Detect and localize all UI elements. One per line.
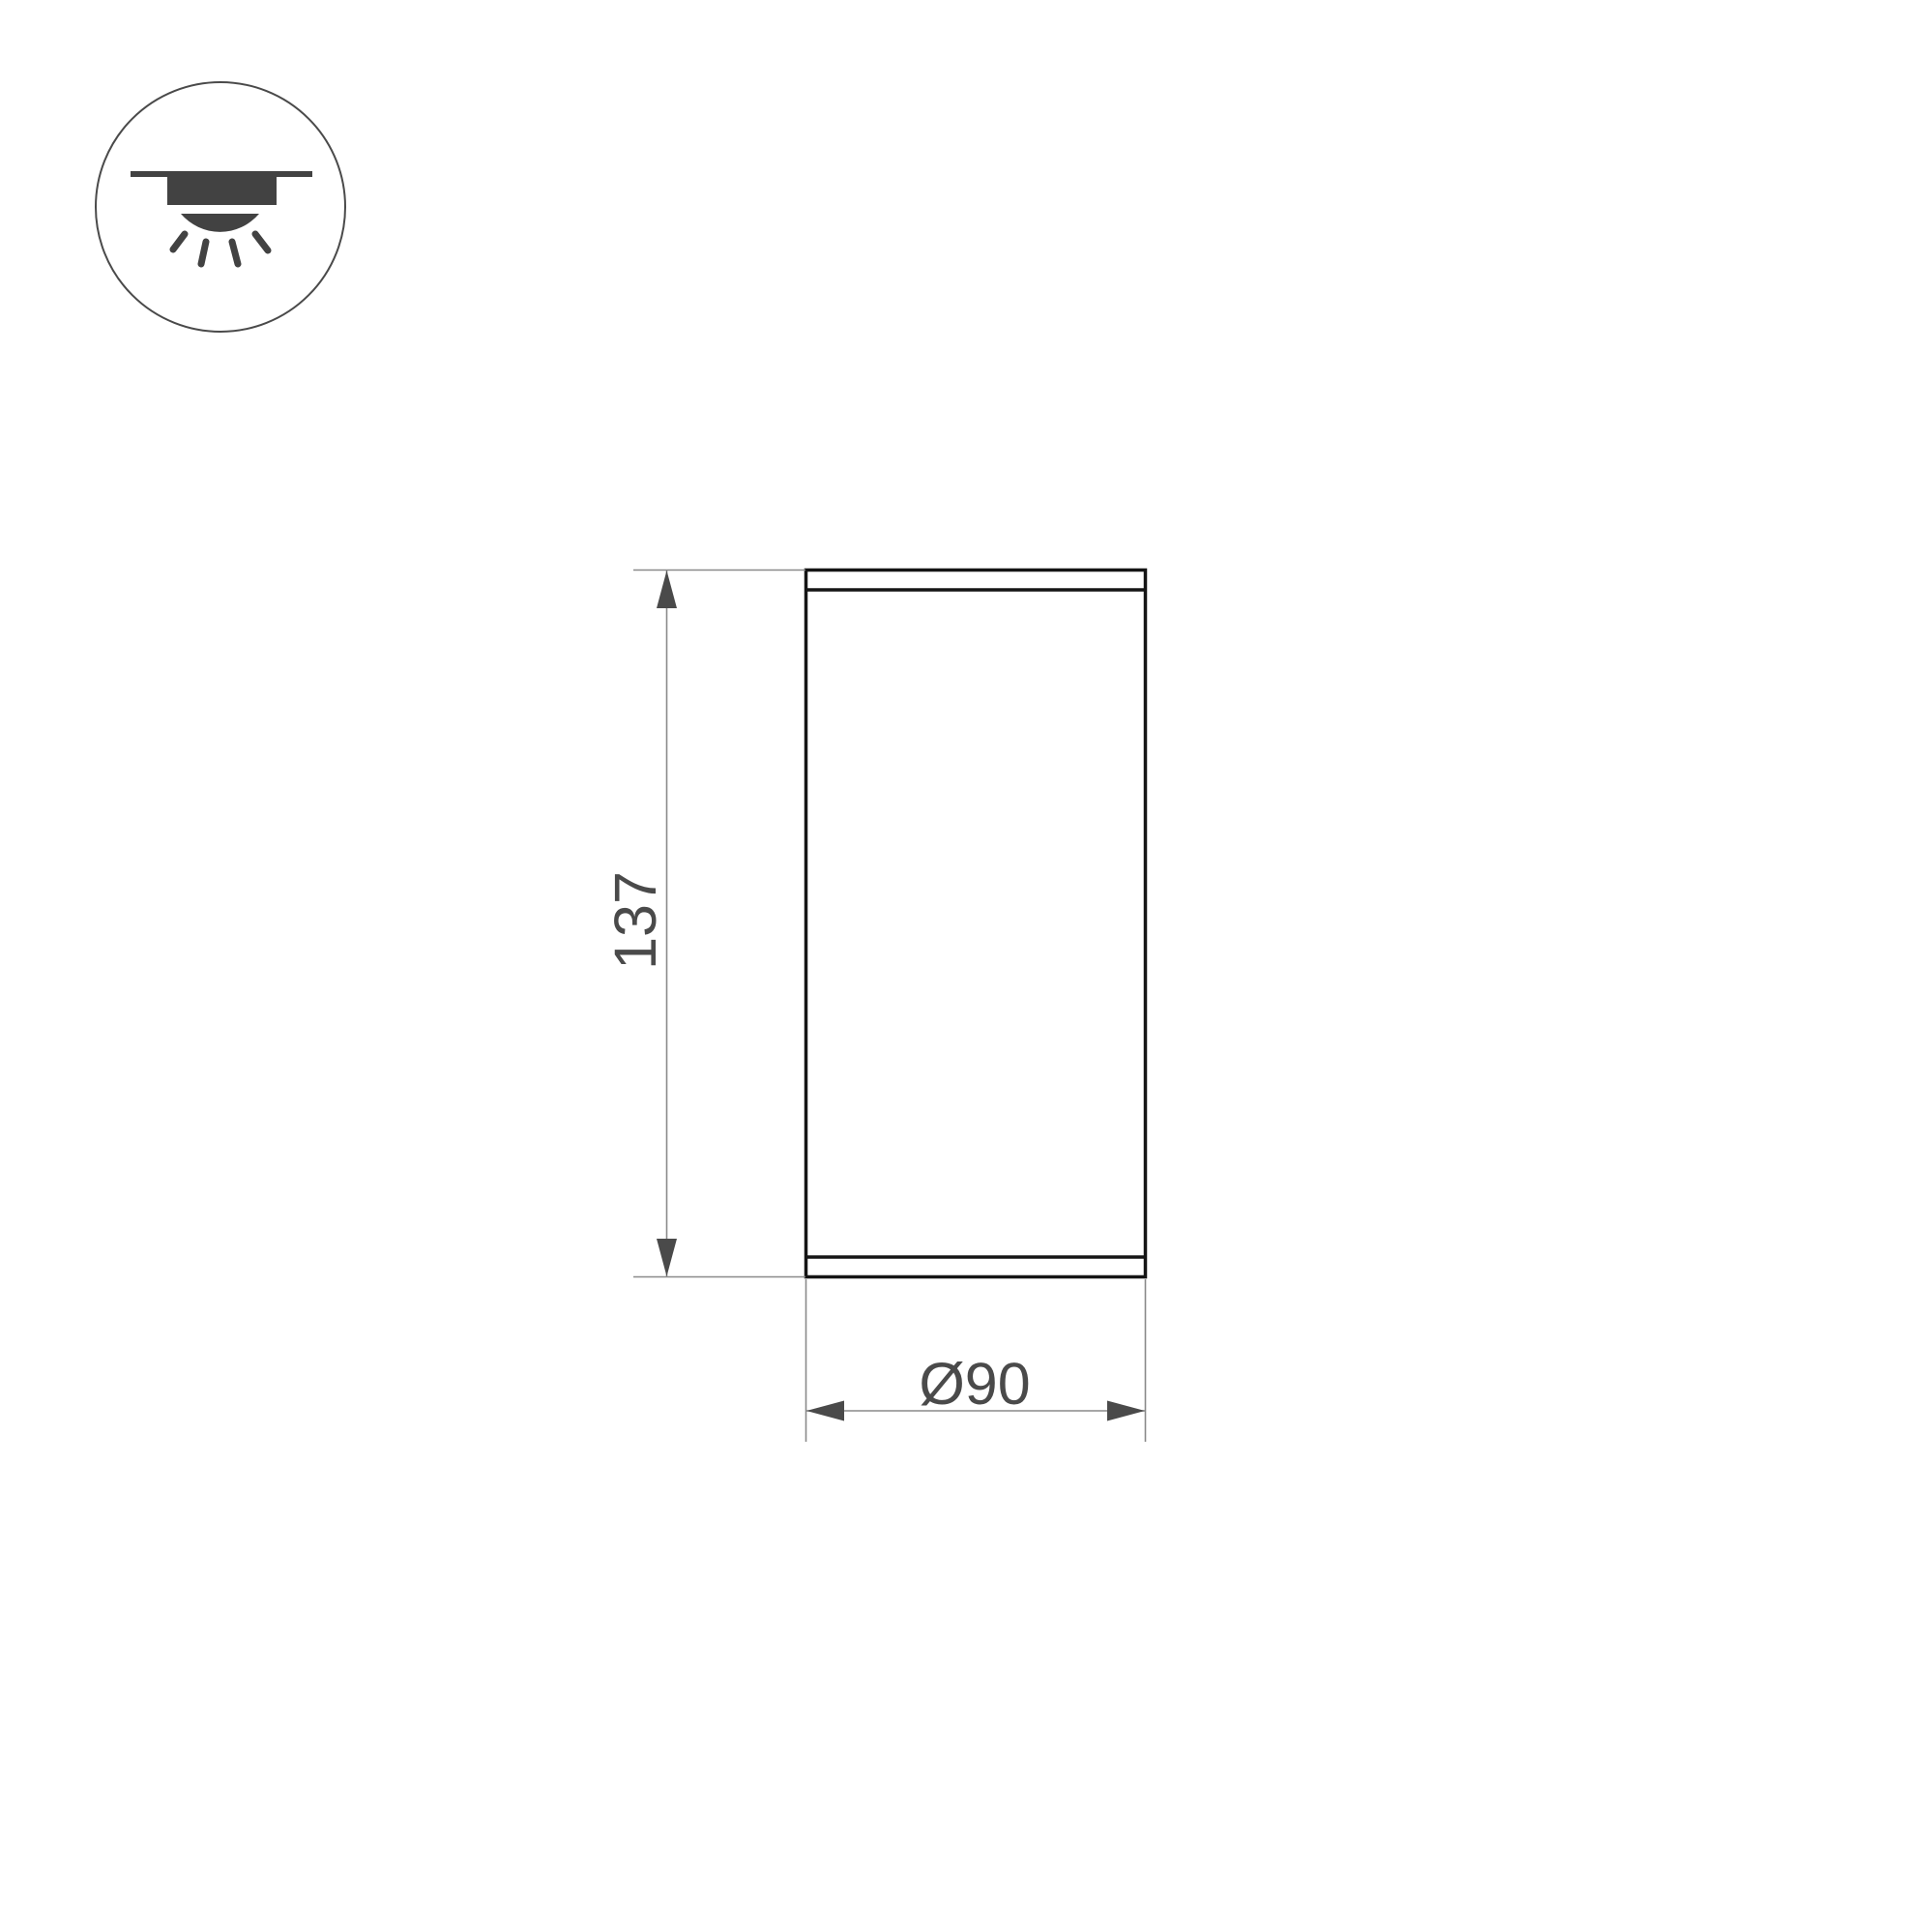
height-arrow-down — [657, 1239, 677, 1276]
diameter-dimension-label: Ø90 — [919, 1351, 1030, 1417]
luminaire-body-rect — [806, 571, 1146, 1277]
fixture-body-shape — [167, 177, 277, 205]
luminaire-outline — [806, 571, 1146, 1277]
light-ray-1 — [173, 234, 185, 249]
icon-border-circle — [96, 82, 345, 332]
dimension-drawing-page: 137 Ø90 — [0, 0, 1932, 1932]
diameter-arrow-left — [806, 1401, 844, 1421]
ceiling-line-shape — [131, 171, 312, 177]
height-dimension-label: 137 — [602, 871, 668, 970]
light-ray-2 — [201, 242, 206, 264]
diameter-dimension: Ø90 — [806, 1279, 1146, 1442]
height-dimension: 137 — [602, 571, 805, 1277]
light-ray-3 — [232, 242, 238, 264]
diameter-arrow-right — [1107, 1401, 1145, 1421]
surface-downlight-icon — [96, 82, 345, 332]
light-ray-4 — [255, 234, 268, 250]
height-arrow-up — [657, 571, 677, 608]
light-dome-shape — [181, 214, 259, 232]
technical-drawing-canvas: 137 Ø90 — [0, 0, 1932, 1932]
